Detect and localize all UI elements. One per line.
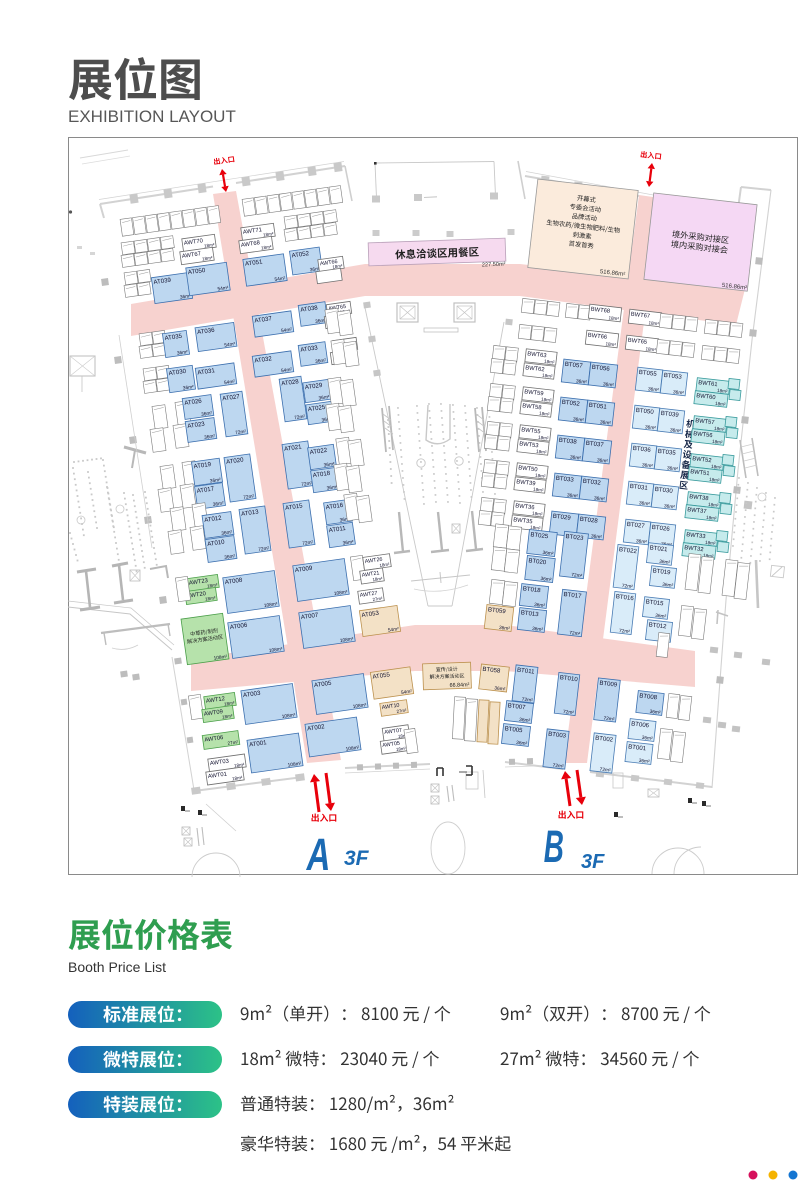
svg-text:A: A — [306, 830, 331, 880]
svg-text:227.50m²: 227.50m² — [482, 262, 506, 269]
svg-text:B: B — [544, 821, 564, 871]
svg-text:3F: 3F — [581, 851, 605, 873]
svg-text:EXHIBITION LAYOUT: EXHIBITION LAYOUT — [68, 107, 236, 126]
svg-text:66.84m²: 66.84m² — [449, 682, 469, 689]
svg-text:Booth Price List: Booth Price List — [68, 959, 166, 975]
svg-text:3F: 3F — [344, 847, 370, 870]
